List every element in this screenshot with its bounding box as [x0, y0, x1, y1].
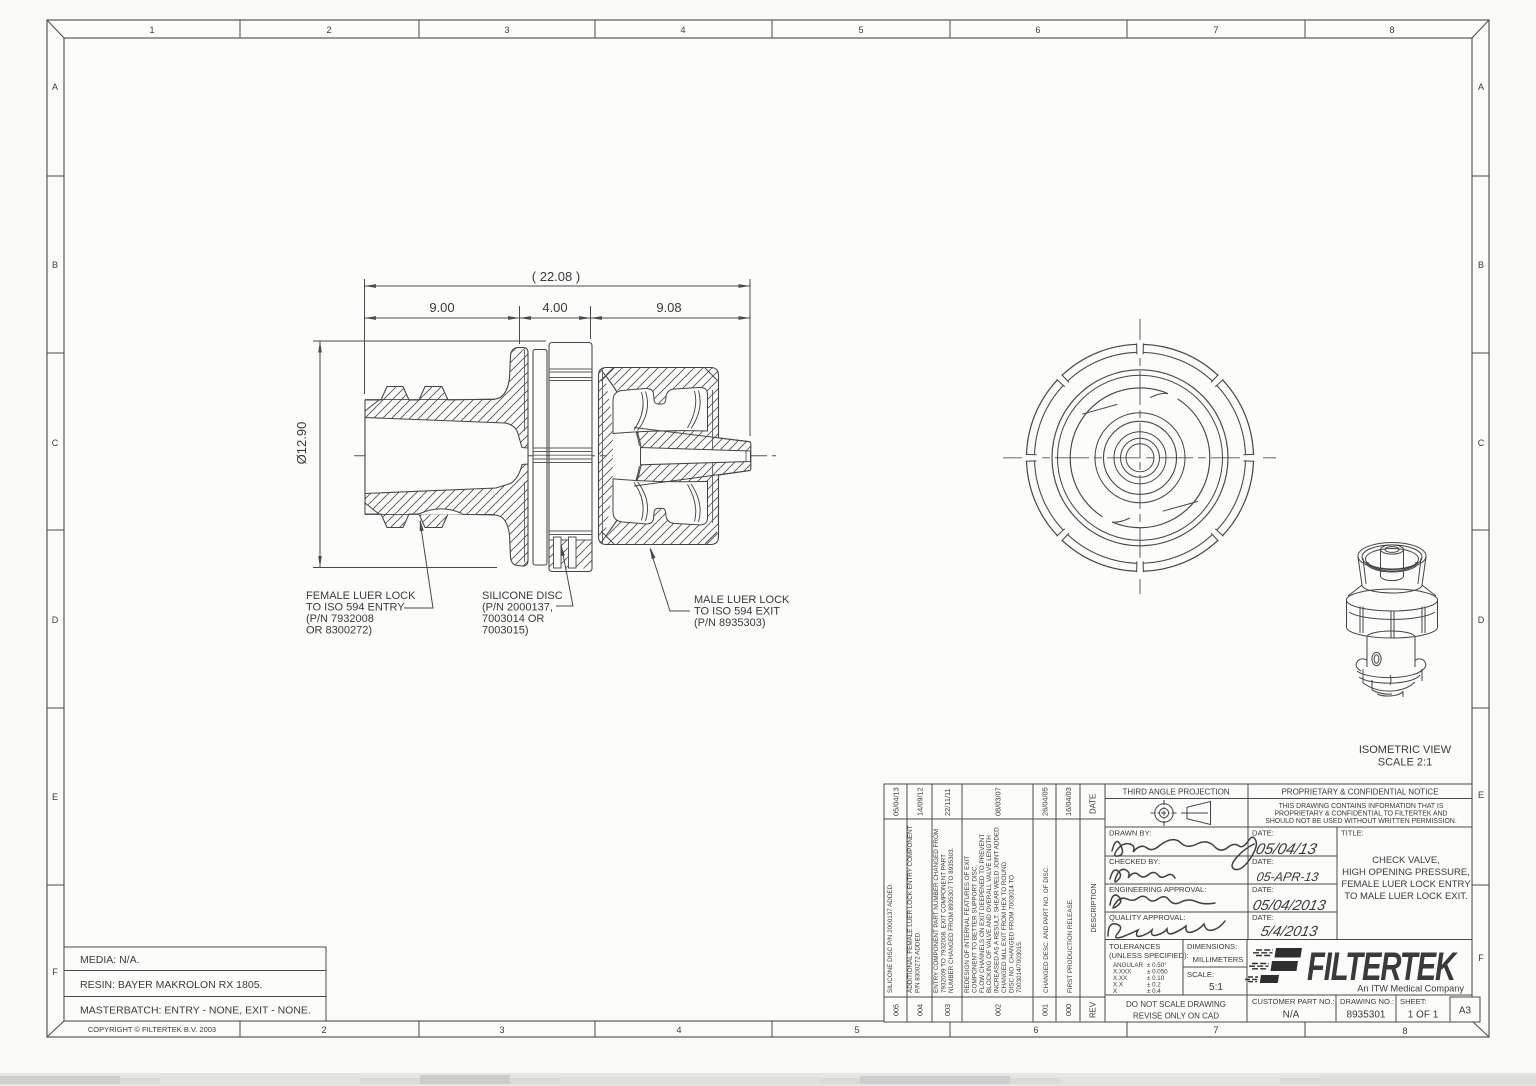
svg-text:THIRD ANGLE PROJECTION: THIRD ANGLE PROJECTION — [1122, 788, 1229, 797]
svg-text:26/04/05: 26/04/05 — [1041, 787, 1050, 816]
svg-text:4.00: 4.00 — [542, 300, 567, 315]
svg-text:9.00: 9.00 — [429, 300, 454, 315]
svg-text:001: 001 — [1041, 1004, 1050, 1016]
svg-text:05/04/2013: 05/04/2013 — [1251, 898, 1328, 914]
svg-text:C: C — [1478, 438, 1485, 448]
svg-text:5: 5 — [858, 25, 863, 35]
svg-text:FILTERTEK: FILTERTEK — [1307, 945, 1458, 990]
svg-text:TITLE:: TITLE: — [1341, 829, 1364, 838]
svg-text:± 0.4: ± 0.4 — [1147, 988, 1161, 995]
svg-text:REVISE ONLY ON CAD: REVISE ONLY ON CAD — [1133, 1012, 1219, 1021]
svg-text:PROPRIETARY & CONFIDENTIAL NOT: PROPRIETARY & CONFIDENTIAL NOTICE — [1281, 788, 1438, 797]
svg-text:7003014 OR: 7003014 OR — [482, 613, 544, 625]
svg-text:004: 004 — [916, 1004, 925, 1016]
svg-text:6: 6 — [1033, 1025, 1038, 1035]
svg-text:SHOULD NOT BE USED WITHOUT WRI: SHOULD NOT BE USED WITHOUT WRITTEN PERMI… — [1265, 818, 1457, 825]
svg-text:DATE:: DATE: — [1252, 857, 1274, 866]
svg-text:5:1: 5:1 — [1209, 982, 1223, 993]
svg-text:B: B — [1478, 260, 1484, 270]
svg-text:F: F — [52, 967, 58, 977]
svg-text:DO NOT SCALE DRAWING: DO NOT SCALE DRAWING — [1126, 1000, 1226, 1009]
svg-text:SCALE:: SCALE: — [1187, 970, 1214, 979]
svg-text:FEMALE LUER LOCK: FEMALE LUER LOCK — [306, 590, 416, 602]
svg-text:7: 7 — [1213, 25, 1218, 35]
svg-text:OR 8300272): OR 8300272) — [306, 625, 372, 637]
svg-text:E: E — [52, 792, 58, 802]
svg-text:MEDIA: N/A.: MEDIA: N/A. — [80, 954, 140, 966]
svg-text:TO ISO 594 ENTRY: TO ISO 594 ENTRY — [306, 602, 405, 614]
svg-text:CHECK VALVE,: CHECK VALVE, — [1372, 855, 1440, 866]
svg-text:16/04/03: 16/04/03 — [1064, 787, 1073, 816]
svg-text:FIRST PRODUCTION RELEASE.: FIRST PRODUCTION RELEASE. — [1067, 898, 1074, 993]
svg-text:DRAWING NO.:: DRAWING NO.: — [1340, 997, 1394, 1006]
svg-text:RESIN: BAYER MAKROLON RX 1805.: RESIN: BAYER MAKROLON RX 1805. — [80, 979, 262, 991]
svg-text:F: F — [1478, 953, 1484, 963]
svg-text:5/4/2013: 5/4/2013 — [1259, 924, 1320, 940]
svg-text:SCALE 2:1: SCALE 2:1 — [1378, 757, 1432, 769]
svg-text:CHANGED DESC. AND PART NO. OF: CHANGED DESC. AND PART NO. OF DISC. — [1043, 866, 1050, 993]
svg-text:CHECKED BY:: CHECKED BY: — [1109, 857, 1160, 866]
svg-text:3: 3 — [499, 1025, 504, 1035]
svg-text:TO MALE LUER LOCK EXIT.: TO MALE LUER LOCK EXIT. — [1344, 891, 1467, 902]
svg-text:MALE LUER LOCK: MALE LUER LOCK — [694, 594, 790, 606]
svg-text:005: 005 — [892, 1004, 901, 1016]
svg-text:003: 003 — [943, 1004, 952, 1016]
svg-text:MASTERBATCH: ENTRY - NONE, EXI: MASTERBATCH: ENTRY - NONE, EXIT - NONE. — [80, 1005, 311, 1017]
svg-text:FEMALE LUER LOCK ENTRY: FEMALE LUER LOCK ENTRY — [1341, 879, 1471, 890]
svg-text:DESCRIPTION: DESCRIPTION — [1089, 883, 1098, 932]
svg-text:N/A: N/A — [1283, 1010, 1300, 1021]
svg-text:( 22.08 ): ( 22.08 ) — [532, 269, 580, 284]
svg-text:5: 5 — [854, 1025, 859, 1035]
svg-text:4: 4 — [680, 25, 685, 35]
svg-text:SILICONE DISC P/N 2000137 ADDE: SILICONE DISC P/N 2000137 ADDED. — [887, 883, 894, 993]
svg-text:DATE:: DATE: — [1252, 913, 1274, 922]
svg-text:REV: REV — [1089, 1001, 1098, 1018]
svg-text:3: 3 — [504, 25, 509, 35]
svg-text:05-APR-13: 05-APR-13 — [1255, 870, 1319, 884]
svg-text:DATE: DATE — [1089, 794, 1098, 814]
svg-text:Ø12.90: Ø12.90 — [294, 422, 309, 465]
svg-text:E: E — [1478, 790, 1484, 800]
svg-text:CUSTOMER PART NO.:: CUSTOMER PART NO.: — [1252, 997, 1335, 1006]
svg-text:QUALITY APPROVAL:: QUALITY APPROVAL: — [1109, 913, 1186, 922]
svg-text:(P/N 2000137,: (P/N 2000137, — [482, 602, 553, 614]
svg-text:1: 1 — [149, 25, 154, 35]
svg-text:22/11/11: 22/11/11 — [943, 788, 952, 816]
svg-text:A: A — [1478, 82, 1484, 92]
svg-text:05/04/13: 05/04/13 — [1254, 841, 1319, 858]
svg-text:C: C — [52, 438, 59, 448]
svg-text:ISOMETRIC VIEW: ISOMETRIC VIEW — [1359, 744, 1452, 756]
svg-text:000: 000 — [1064, 1004, 1073, 1016]
svg-text:DRAWN BY:: DRAWN BY: — [1109, 829, 1151, 838]
svg-text:COPYRIGHT © FILTERTEK B.V. 200: COPYRIGHT © FILTERTEK B.V. 2003 — [88, 1025, 216, 1034]
svg-text:8935301: 8935301 — [1347, 1010, 1386, 1021]
svg-text:14/09/12: 14/09/12 — [916, 787, 925, 816]
svg-text:DATE:: DATE: — [1252, 885, 1274, 894]
svg-text:8: 8 — [1389, 25, 1394, 35]
svg-text:An ITW Medical Company: An ITW Medical Company — [1357, 984, 1464, 994]
svg-text:1 OF 1: 1 OF 1 — [1408, 1010, 1439, 1021]
svg-text:DIMENSIONS:: DIMENSIONS: — [1187, 942, 1237, 951]
svg-text:08/03/07: 08/03/07 — [994, 787, 1003, 816]
svg-text:HIGH OPENING PRESSURE,: HIGH OPENING PRESSURE, — [1342, 867, 1470, 878]
svg-text:D: D — [1478, 615, 1485, 625]
svg-text:6: 6 — [1035, 25, 1040, 35]
svg-text:9.08: 9.08 — [656, 300, 681, 315]
svg-text:4: 4 — [676, 1025, 681, 1035]
svg-text:D: D — [52, 615, 59, 625]
svg-text:7: 7 — [1213, 1025, 1218, 1035]
svg-text:05/04/13: 05/04/13 — [892, 787, 901, 816]
svg-text:SILICONE DISC: SILICONE DISC — [482, 590, 563, 602]
svg-text:(UNLESS SPECIFIED):: (UNLESS SPECIFIED): — [1109, 951, 1189, 960]
svg-text:THIS DRAWING CONTAINS INFORMAT: THIS DRAWING CONTAINS INFORMATION THAT I… — [1279, 803, 1444, 810]
svg-text:SHEET:: SHEET: — [1400, 997, 1427, 1006]
svg-text:(P/N 7932008: (P/N 7932008 — [306, 613, 374, 625]
svg-text:B: B — [52, 260, 58, 270]
svg-text:A3: A3 — [1459, 1006, 1472, 1017]
svg-text:PROPRIETARY & CONFIDENTIAL TO: PROPRIETARY & CONFIDENTIAL TO FILTERTEK … — [1274, 811, 1447, 818]
svg-text:ENGINEERING APPROVAL:: ENGINEERING APPROVAL: — [1109, 885, 1206, 894]
svg-text:2: 2 — [326, 25, 331, 35]
svg-text:TO ISO 594 EXIT: TO ISO 594 EXIT — [694, 606, 780, 618]
svg-text:8: 8 — [1402, 1026, 1407, 1036]
svg-text:MILLIMETERS: MILLIMETERS — [1193, 955, 1244, 964]
svg-text:X: X — [1113, 988, 1117, 995]
svg-text:DATE:: DATE: — [1252, 829, 1274, 838]
svg-text:A: A — [52, 82, 58, 92]
svg-text:TOLERANCES: TOLERANCES — [1109, 942, 1160, 951]
svg-text:7003015): 7003015) — [482, 625, 529, 637]
svg-text:002: 002 — [994, 1004, 1003, 1016]
svg-text:(P/N 8935303): (P/N 8935303) — [694, 617, 766, 629]
svg-text:2: 2 — [321, 1025, 326, 1035]
